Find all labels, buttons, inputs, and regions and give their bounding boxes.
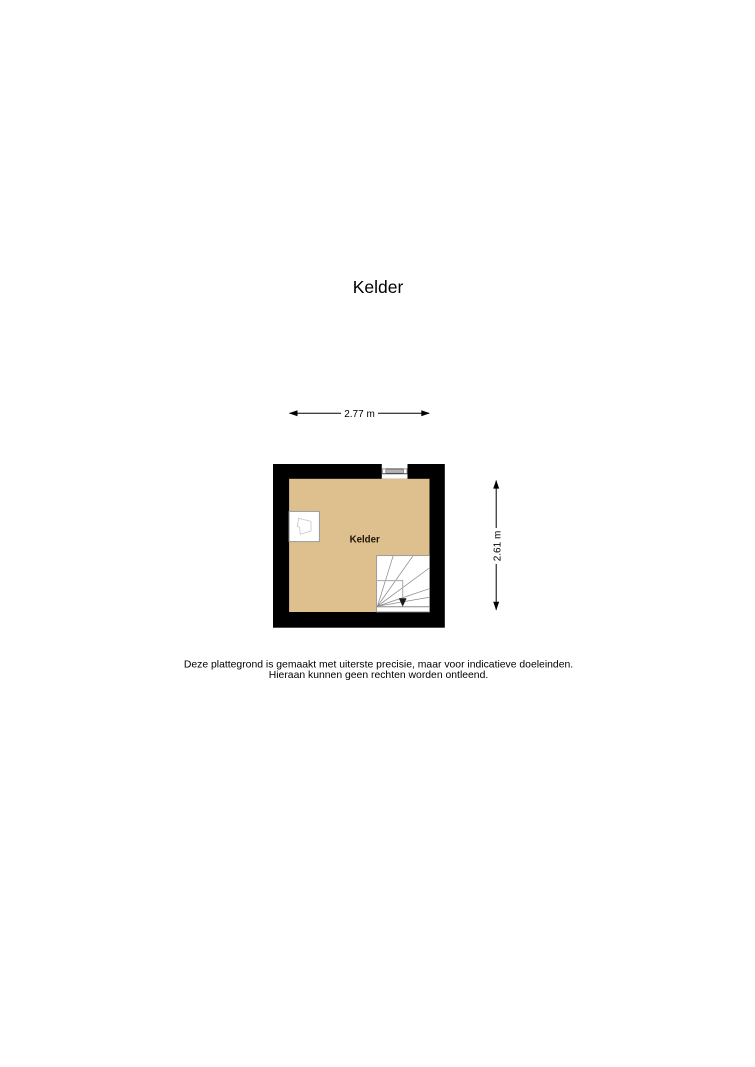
svg-text:Hieraan kunnen geen rechten wo: Hieraan kunnen geen rechten worden ontle…: [269, 670, 489, 681]
svg-text:Deze plattegrond is gemaakt me: Deze plattegrond is gemaakt met uiterste…: [184, 659, 573, 670]
svg-text:Kelder: Kelder: [353, 277, 404, 297]
svg-text:2.61 m: 2.61 m: [493, 531, 504, 562]
svg-text:2.77 m: 2.77 m: [344, 409, 375, 420]
svg-text:Kelder: Kelder: [350, 534, 380, 545]
